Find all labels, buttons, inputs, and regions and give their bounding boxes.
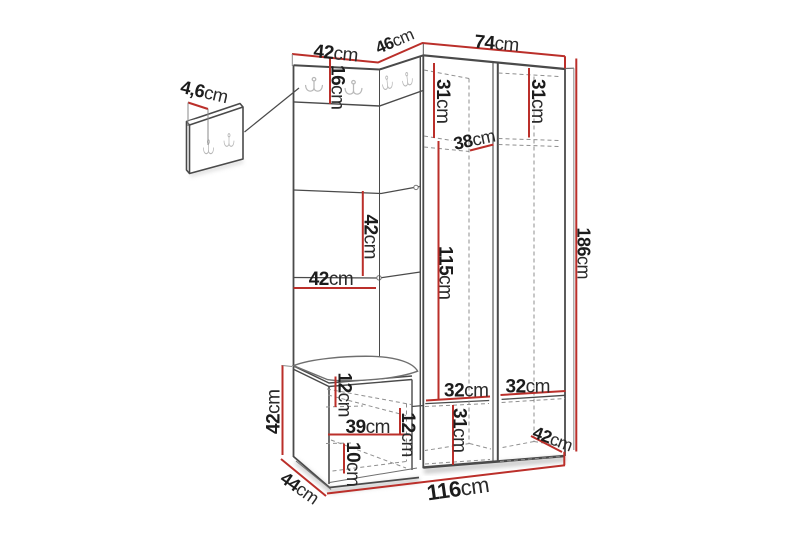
svg-text:42cm: 42cm: [264, 390, 285, 434]
svg-text:32cm: 32cm: [444, 381, 488, 402]
svg-text:16cm: 16cm: [327, 65, 348, 109]
svg-text:42cm: 42cm: [360, 215, 381, 259]
svg-text:12cm: 12cm: [334, 373, 355, 417]
svg-text:12cm: 12cm: [397, 412, 418, 456]
svg-text:31cm: 31cm: [449, 408, 470, 452]
svg-text:186cm: 186cm: [574, 228, 594, 280]
svg-text:39cm: 39cm: [346, 417, 390, 438]
svg-text:42cm: 42cm: [309, 269, 353, 290]
svg-text:74cm: 74cm: [474, 32, 520, 57]
svg-text:31cm: 31cm: [527, 79, 548, 123]
svg-text:115cm: 115cm: [435, 246, 456, 299]
svg-text:32cm: 32cm: [506, 377, 550, 398]
svg-text:31cm: 31cm: [432, 79, 453, 123]
svg-text:10cm: 10cm: [342, 442, 363, 486]
